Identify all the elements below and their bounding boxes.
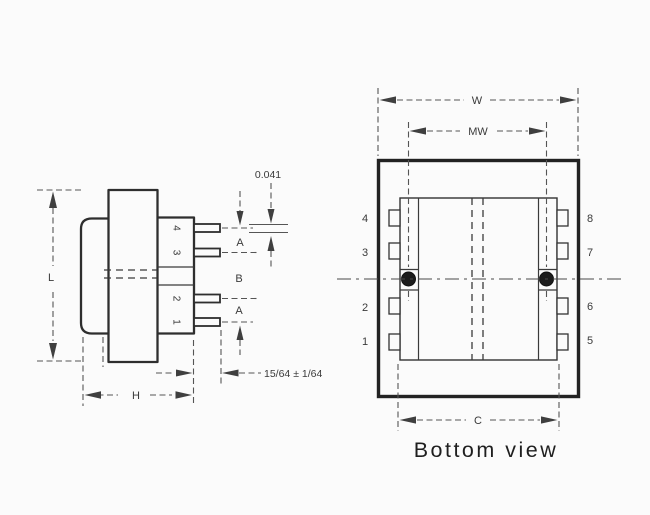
bottom-view: W MW C 4 3 2 1 8 7 6 5 Bottom view <box>337 88 621 462</box>
side-pin-1 <box>194 318 220 326</box>
bottom-pin-1-label: 1 <box>362 336 368 348</box>
drawing-page: 4 3 2 1 L H <box>0 0 650 515</box>
dim-H-label: H <box>132 390 140 402</box>
bottom-pin-7-label: 7 <box>587 247 593 259</box>
side-pins <box>194 224 220 326</box>
technical-drawing: 4 3 2 1 L H <box>0 0 650 515</box>
side-pin-3 <box>194 249 220 257</box>
dim-C-label: C <box>474 415 482 427</box>
bottom-pin-3 <box>389 243 400 259</box>
dim-pin-thickness-label: 0.041 <box>255 169 281 181</box>
bottom-pin-1 <box>389 334 400 350</box>
dim-pin-thickness <box>237 183 289 269</box>
side-left-bobbin-outline <box>81 219 109 334</box>
dim-B-label: B <box>235 273 242 285</box>
dim-W-label: W <box>472 95 483 107</box>
bottom-left-pin-tabs <box>389 210 400 350</box>
side-pin-4 <box>194 224 220 232</box>
dim-A-top-label: A <box>236 237 244 249</box>
side-pin-2-label: 2 <box>171 296 182 302</box>
side-pin-1-label: 1 <box>171 319 182 325</box>
dim-pin-length-label: 15/64 ± 1/64 <box>264 368 322 380</box>
bottom-right-pin-tabs <box>557 210 568 350</box>
bottom-pin-8-label: 8 <box>587 213 593 225</box>
bottom-pin-6 <box>557 298 568 314</box>
bottom-pin-3-label: 3 <box>362 247 368 259</box>
bottom-pin-2 <box>389 298 400 314</box>
bottom-pin-5 <box>557 334 568 350</box>
side-pin-2 <box>194 295 220 303</box>
bottom-pin-4-label: 4 <box>362 213 368 225</box>
side-view: 4 3 2 1 L H <box>37 169 322 406</box>
bottom-pin-4 <box>389 210 400 226</box>
side-lamination-outline <box>109 190 158 362</box>
bottom-pin-2-label: 2 <box>362 302 368 314</box>
dim-pin-length <box>156 330 261 386</box>
bottom-pin-8 <box>557 210 568 226</box>
dim-L <box>37 190 84 361</box>
dim-MW-label: MW <box>468 126 488 138</box>
side-pin-3-label: 3 <box>171 250 182 256</box>
side-pin-4-label: 4 <box>171 225 182 231</box>
bottom-pin-6-label: 6 <box>587 301 593 313</box>
side-right-flange-outline <box>158 218 195 334</box>
bottom-pin-5-label: 5 <box>587 335 593 347</box>
bottom-view-caption: Bottom view <box>414 438 559 462</box>
side-hidden-lines <box>104 267 194 285</box>
dim-A-bottom-label: A <box>235 305 243 317</box>
bottom-pin-7 <box>557 243 568 259</box>
dim-L-label: L <box>48 272 54 284</box>
